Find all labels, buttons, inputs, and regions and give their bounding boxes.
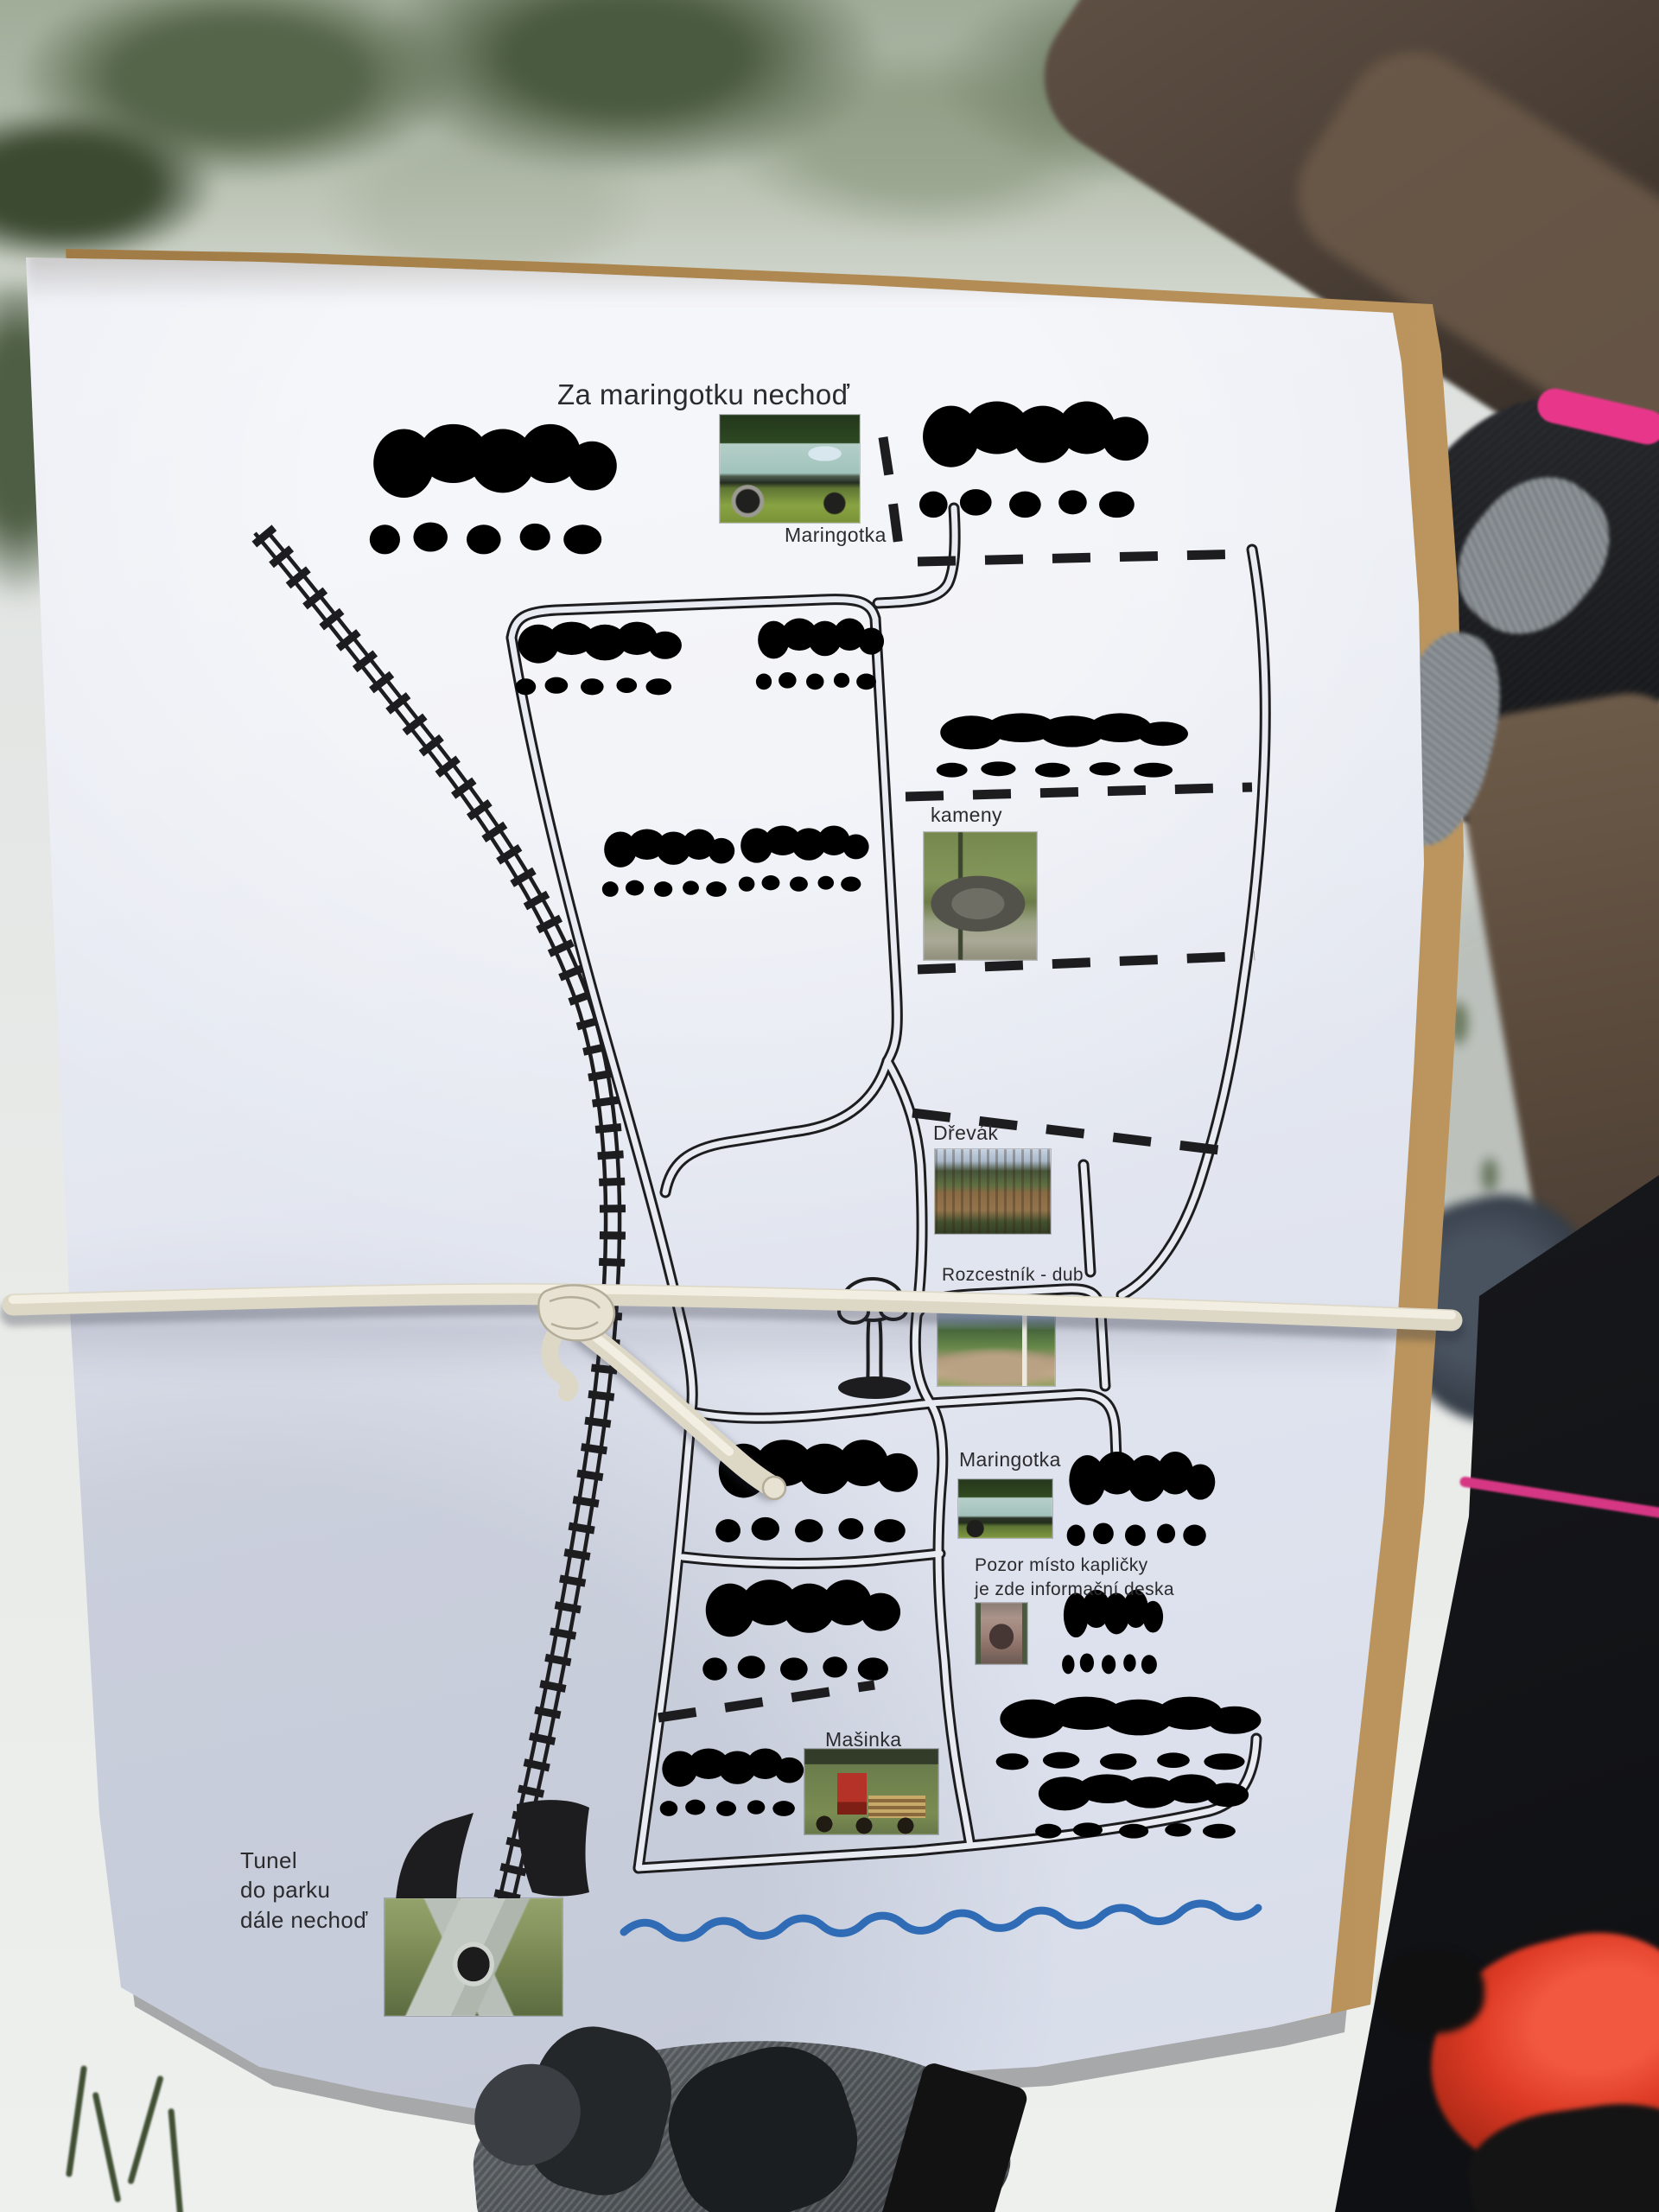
white-elastic-cord [0,0,1659,2212]
photo-of-park-map: Za maringotku nechoď Maringotka kameny D… [0,0,1659,2212]
